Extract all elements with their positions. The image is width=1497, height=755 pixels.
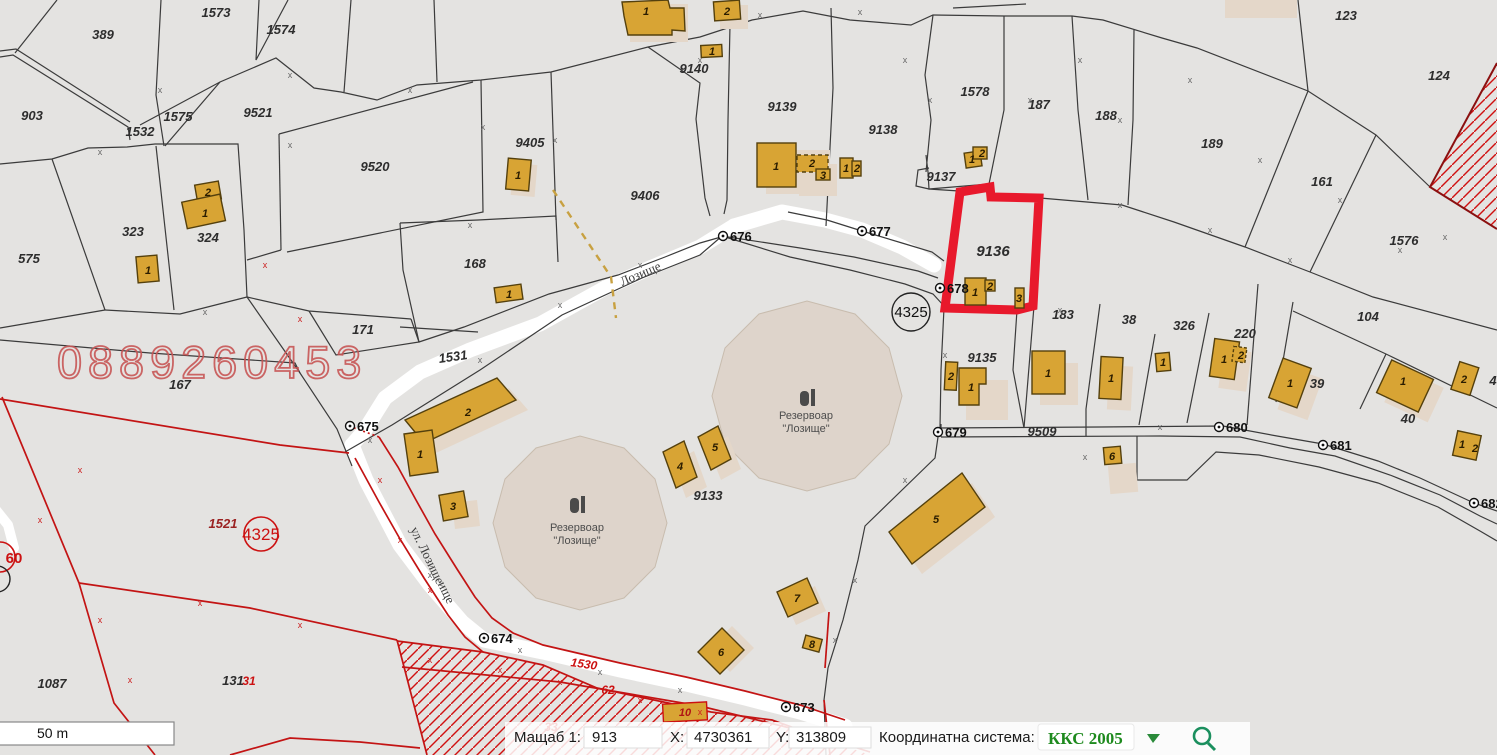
svg-text:161: 161 xyxy=(1311,174,1333,189)
svg-text:x: x xyxy=(428,585,433,595)
svg-text:2: 2 xyxy=(853,163,860,175)
svg-text:1576: 1576 xyxy=(1390,233,1420,248)
svg-text:x: x xyxy=(498,665,503,675)
svg-text:183: 183 xyxy=(1052,307,1074,322)
svg-text:1: 1 xyxy=(709,46,715,58)
svg-text:679: 679 xyxy=(945,425,967,440)
svg-text:x: x xyxy=(1443,232,1448,242)
svg-text:4730361: 4730361 xyxy=(694,729,752,746)
svg-text:131: 131 xyxy=(222,673,244,688)
svg-text:"Лозище": "Лозище" xyxy=(782,423,829,435)
svg-text:x: x xyxy=(1118,115,1123,125)
svg-text:2: 2 xyxy=(986,281,993,293)
svg-text:675: 675 xyxy=(357,419,379,434)
svg-text:ККС 2005: ККС 2005 xyxy=(1048,729,1123,748)
svg-text:X:: X: xyxy=(670,729,684,746)
svg-text:x: x xyxy=(1078,55,1083,65)
svg-text:40: 40 xyxy=(1400,411,1416,426)
svg-text:x: x xyxy=(928,95,933,105)
svg-text:9509: 9509 xyxy=(1028,424,1058,439)
svg-text:50 m: 50 m xyxy=(37,725,68,741)
svg-text:674: 674 xyxy=(491,631,513,646)
svg-text:1573: 1573 xyxy=(202,5,232,20)
svg-text:5: 5 xyxy=(712,442,719,454)
svg-text:1: 1 xyxy=(1287,378,1293,390)
svg-text:1574: 1574 xyxy=(267,22,297,37)
svg-text:389: 389 xyxy=(92,27,114,42)
svg-text:x: x xyxy=(638,260,643,270)
svg-text:9133: 9133 xyxy=(694,488,724,503)
svg-text:x: x xyxy=(368,435,373,445)
svg-text:1: 1 xyxy=(515,170,521,182)
svg-text:x: x xyxy=(518,645,523,655)
svg-text:Y:: Y: xyxy=(776,729,789,746)
svg-text:9138: 9138 xyxy=(869,122,899,137)
svg-text:678: 678 xyxy=(947,281,969,296)
svg-text:1: 1 xyxy=(1400,376,1406,388)
svg-text:x: x xyxy=(903,475,908,485)
svg-text:9405: 9405 xyxy=(516,135,546,150)
svg-text:31: 31 xyxy=(242,674,256,688)
svg-text:9140: 9140 xyxy=(680,61,710,76)
svg-text:x: x xyxy=(1083,452,1088,462)
svg-text:1: 1 xyxy=(1108,373,1114,385)
svg-text:188: 188 xyxy=(1095,108,1117,123)
svg-text:x: x xyxy=(758,10,763,20)
svg-text:x: x xyxy=(298,620,303,630)
svg-text:0889260453: 0889260453 xyxy=(57,337,367,388)
svg-text:575: 575 xyxy=(18,251,40,266)
svg-text:x: x xyxy=(428,655,433,665)
svg-text:9520: 9520 xyxy=(361,159,391,174)
svg-text:x: x xyxy=(408,85,413,95)
svg-text:323: 323 xyxy=(122,224,144,239)
svg-text:1: 1 xyxy=(968,382,974,394)
svg-text:1: 1 xyxy=(969,154,975,166)
svg-text:673: 673 xyxy=(793,700,815,715)
svg-text:124: 124 xyxy=(1428,68,1450,83)
svg-text:168: 168 xyxy=(464,256,486,271)
svg-text:1: 1 xyxy=(643,6,649,18)
svg-text:9137: 9137 xyxy=(927,169,957,184)
svg-text:x: x xyxy=(198,598,203,608)
svg-text:903: 903 xyxy=(21,108,43,123)
svg-text:x: x xyxy=(558,300,563,310)
svg-text:1: 1 xyxy=(506,289,512,301)
svg-text:913: 913 xyxy=(592,729,617,746)
svg-text:4325: 4325 xyxy=(894,304,927,321)
svg-text:326: 326 xyxy=(1173,318,1195,333)
svg-text:x: x xyxy=(833,635,838,645)
svg-text:x: x xyxy=(481,122,486,132)
svg-text:x: x xyxy=(378,475,383,485)
svg-text:2: 2 xyxy=(947,371,954,383)
svg-text:10: 10 xyxy=(679,707,692,719)
svg-text:1: 1 xyxy=(417,449,423,461)
svg-text:"Лозище": "Лозище" xyxy=(553,535,600,547)
svg-text:1087: 1087 xyxy=(38,676,68,691)
svg-text:4325: 4325 xyxy=(242,525,280,544)
svg-text:2: 2 xyxy=(204,187,211,199)
svg-text:8: 8 xyxy=(809,639,816,651)
svg-text:3: 3 xyxy=(820,170,826,182)
svg-text:x: x xyxy=(128,675,133,685)
svg-text:6: 6 xyxy=(718,647,725,659)
svg-text:x: x xyxy=(1158,422,1163,432)
svg-text:2: 2 xyxy=(808,158,815,170)
svg-text:313809: 313809 xyxy=(796,729,846,746)
svg-text:39: 39 xyxy=(1310,376,1325,391)
svg-text:3: 3 xyxy=(1016,293,1022,305)
svg-text:4: 4 xyxy=(676,461,683,473)
svg-text:x: x xyxy=(1028,95,1033,105)
svg-text:x: x xyxy=(203,307,208,317)
svg-text:123: 123 xyxy=(1335,8,1357,23)
svg-text:324: 324 xyxy=(197,230,219,245)
svg-text:x: x xyxy=(698,55,703,65)
svg-text:1: 1 xyxy=(1045,368,1051,380)
svg-text:2: 2 xyxy=(1460,374,1467,386)
svg-text:x: x xyxy=(298,314,303,324)
svg-text:4: 4 xyxy=(1488,373,1497,388)
svg-text:3: 3 xyxy=(450,501,456,513)
svg-text:x: x xyxy=(1118,200,1123,210)
svg-text:Мащаб 1:: Мащаб 1: xyxy=(514,729,581,746)
svg-text:1: 1 xyxy=(145,265,151,277)
svg-text:x: x xyxy=(598,667,603,677)
svg-text:x: x xyxy=(158,85,163,95)
svg-text:x: x xyxy=(288,70,293,80)
svg-text:1: 1 xyxy=(773,161,779,173)
svg-text:x: x xyxy=(263,260,268,270)
svg-text:6: 6 xyxy=(1109,451,1116,463)
svg-text:x: x xyxy=(903,55,908,65)
svg-text:x: x xyxy=(698,707,703,717)
svg-text:682: 682 xyxy=(1481,496,1497,511)
svg-text:1575: 1575 xyxy=(164,109,194,124)
svg-text:677: 677 xyxy=(869,224,891,239)
svg-text:x: x xyxy=(38,515,43,525)
svg-text:38: 38 xyxy=(1122,312,1137,327)
svg-text:9139: 9139 xyxy=(768,99,798,114)
svg-text:1: 1 xyxy=(1160,357,1166,369)
svg-text:x: x xyxy=(468,220,473,230)
svg-text:x: x xyxy=(1188,75,1193,85)
svg-text:x: x xyxy=(288,140,293,150)
svg-text:9136: 9136 xyxy=(976,243,1010,260)
svg-text:680: 680 xyxy=(1226,420,1248,435)
svg-text:x: x xyxy=(858,7,863,17)
svg-text:Резервоар: Резервоар xyxy=(550,522,604,534)
svg-text:x: x xyxy=(398,535,403,545)
svg-text:9406: 9406 xyxy=(631,188,661,203)
svg-text:x: x xyxy=(478,355,483,365)
svg-text:Координатна система:: Координатна система: xyxy=(879,729,1035,746)
svg-text:x: x xyxy=(428,570,433,580)
svg-text:x: x xyxy=(943,350,948,360)
svg-text:x: x xyxy=(853,575,858,585)
svg-text:681: 681 xyxy=(1330,438,1352,453)
svg-text:x: x xyxy=(558,677,563,687)
svg-text:5: 5 xyxy=(933,514,940,526)
svg-text:1532: 1532 xyxy=(126,124,156,139)
svg-text:2: 2 xyxy=(464,407,471,419)
svg-text:x: x xyxy=(553,135,558,145)
svg-text:220: 220 xyxy=(1233,326,1256,341)
svg-text:1: 1 xyxy=(972,287,978,299)
svg-text:1578: 1578 xyxy=(961,84,991,99)
svg-text:x: x xyxy=(78,465,83,475)
svg-text:2: 2 xyxy=(723,6,730,18)
svg-text:9521: 9521 xyxy=(244,105,273,120)
svg-text:x: x xyxy=(678,685,683,695)
svg-text:x: x xyxy=(1338,195,1343,205)
svg-text:62: 62 xyxy=(601,683,615,697)
svg-text:x: x xyxy=(1208,225,1213,235)
svg-text:x: x xyxy=(1258,155,1263,165)
svg-text:60: 60 xyxy=(6,550,23,567)
svg-text:171: 171 xyxy=(352,322,374,337)
svg-text:676: 676 xyxy=(730,229,752,244)
svg-text:9135: 9135 xyxy=(968,350,998,365)
svg-text:189: 189 xyxy=(1201,136,1223,151)
svg-text:1: 1 xyxy=(843,163,849,175)
svg-text:7: 7 xyxy=(794,593,801,605)
svg-text:x: x xyxy=(638,695,643,705)
svg-text:1: 1 xyxy=(202,208,208,220)
svg-text:x: x xyxy=(1288,255,1293,265)
svg-text:Резервоар: Резервоар xyxy=(779,410,833,422)
svg-text:2: 2 xyxy=(1237,350,1244,362)
svg-text:2: 2 xyxy=(978,148,985,160)
svg-text:2: 2 xyxy=(1471,443,1478,455)
svg-text:x: x xyxy=(1398,245,1403,255)
svg-text:1: 1 xyxy=(1459,439,1465,451)
svg-text:x: x xyxy=(98,615,103,625)
svg-text:1521: 1521 xyxy=(209,516,238,531)
svg-text:1: 1 xyxy=(1221,354,1227,366)
svg-text:x: x xyxy=(98,147,103,157)
svg-text:x: x xyxy=(1058,305,1063,315)
svg-text:104: 104 xyxy=(1357,309,1379,324)
